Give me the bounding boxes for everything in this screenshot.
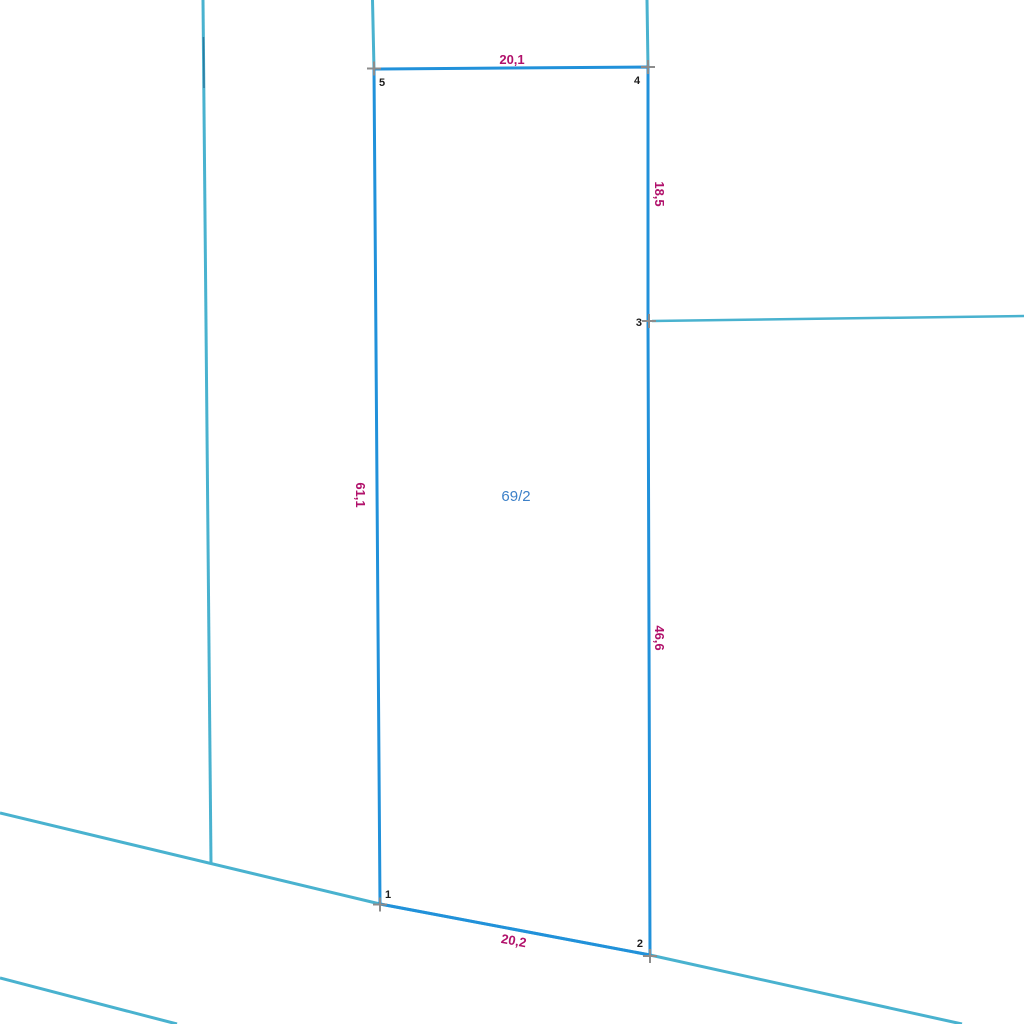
neighbor-boundary-west-overlap bbox=[204, 37, 205, 88]
vertex-label-4: 4 bbox=[634, 75, 641, 87]
dimension-label-bottom: 20,2 bbox=[500, 931, 528, 950]
vertex-label-1: 1 bbox=[385, 889, 391, 901]
boundary-east-from-vertex3 bbox=[652, 316, 1024, 321]
parcel-number-label[interactable]: 69/2 bbox=[501, 488, 530, 505]
dimension-label-right-upper: 18,5 bbox=[652, 181, 667, 206]
dimension-label-right-lower: 46,6 bbox=[652, 625, 667, 650]
boundary-stub-above-vertex5 bbox=[373, 0, 375, 69]
neighbor-boundary-west bbox=[203, 0, 211, 864]
map-viewport[interactable]: 20,1 18,5 61,1 46,6 20,2 69/2 5 4 3 1 2 bbox=[0, 0, 1024, 1024]
vertex-label-2: 2 bbox=[637, 938, 643, 950]
road-edge-south bbox=[0, 978, 177, 1024]
parcel-polygon[interactable] bbox=[374, 67, 650, 955]
map-canvas[interactable]: 20,1 18,5 61,1 46,6 20,2 69/2 5 4 3 1 2 bbox=[0, 0, 1024, 1024]
boundary-stub-above-vertex4 bbox=[647, 0, 648, 67]
vertex-label-3: 3 bbox=[636, 317, 642, 329]
dimension-label-top: 20,1 bbox=[499, 52, 524, 67]
dimension-label-left: 61,1 bbox=[353, 482, 368, 507]
vertex-label-5: 5 bbox=[379, 77, 385, 89]
